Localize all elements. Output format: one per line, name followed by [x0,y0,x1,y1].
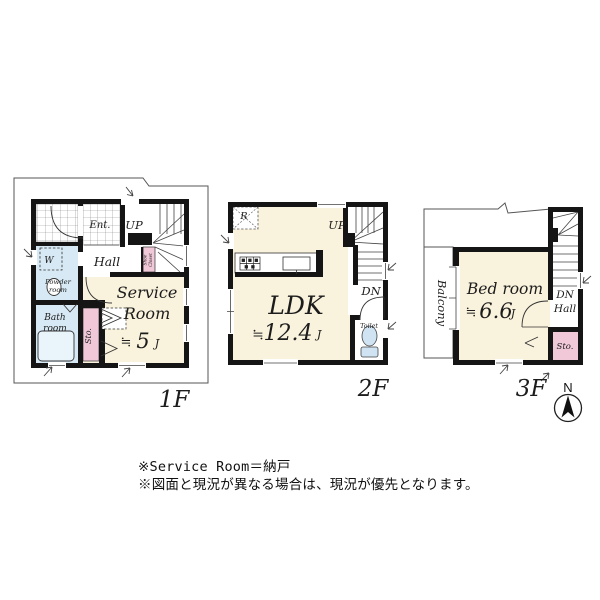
storage-label-1f: Sto. [84,328,93,344]
hall-label-3f: Hall [553,303,576,315]
floor-name-3f: 3F [516,376,548,402]
kitchen-counter [235,250,323,277]
up-label-2f: UP [328,218,346,232]
approx-2f: ≒ [252,327,264,343]
storage-label-3f: Sto. [557,342,574,352]
approx-3f: ≒ [466,305,477,320]
note-service-room: ※Service Room＝納戸 [138,455,291,475]
fridge-label: R [239,211,247,222]
porch-tiles [36,204,78,242]
floor-name-1f: 1F [159,387,191,410]
dn-label-3f: DN [555,289,574,301]
size-1f: 5 [136,329,149,353]
note-disclaimer: ※図面と現況が異なる場合は、現況が優先となります。 [138,473,479,493]
approx-1f: ≒ [121,335,132,350]
service-room-label-1: Service [117,283,178,302]
up-label-1f: UP [125,218,143,232]
size-3f: 6.6 [479,299,512,323]
compass-icon [555,395,582,422]
service-room-label-2: Room [123,304,170,323]
dn-label-2f: DN [360,284,381,298]
bath-label-2: room [43,324,67,334]
unit-3f: J [509,307,516,320]
unit-1f: J [153,337,160,350]
north-label: N [563,380,572,395]
toilet-label: Toilet [360,323,378,330]
hall-label-1f: Hall [93,254,120,269]
toilet-icon [361,326,378,357]
bathtub-icon [38,331,74,361]
floorplan-page: Ent. UP Hall Shoe Closet W Powder room B… [0,0,600,600]
balcony-label: Balcony [435,279,449,327]
shoe-closet-label-1: Shoe [144,254,149,265]
powder-label-2: room [49,286,67,294]
floor-plan-1f: Ent. UP Hall Shoe Closet W Powder room B… [10,165,215,410]
floor-name-2f: 2F [357,376,390,400]
roof-outline [424,203,551,247]
floor-plan-3f: Balcony Bed room ≒ 6.6 J DN Hall Sto. 3F… [405,190,600,430]
floor-plan-2f: R UP DN LDK ≒ 12.4 J Toilet 2F [200,180,400,400]
size-2f: 12.4 [264,321,313,346]
stairs-1f [153,204,184,272]
ent-label: Ent. [89,220,111,231]
shoe-closet-label-2: Closet [149,253,154,267]
powder-label-1: Powder [44,278,72,286]
washer-label: W [44,256,54,266]
ldk-label: LDK [267,291,325,320]
bedroom-label: Bed room [466,280,543,298]
bath-label-1: Bath [43,313,65,323]
